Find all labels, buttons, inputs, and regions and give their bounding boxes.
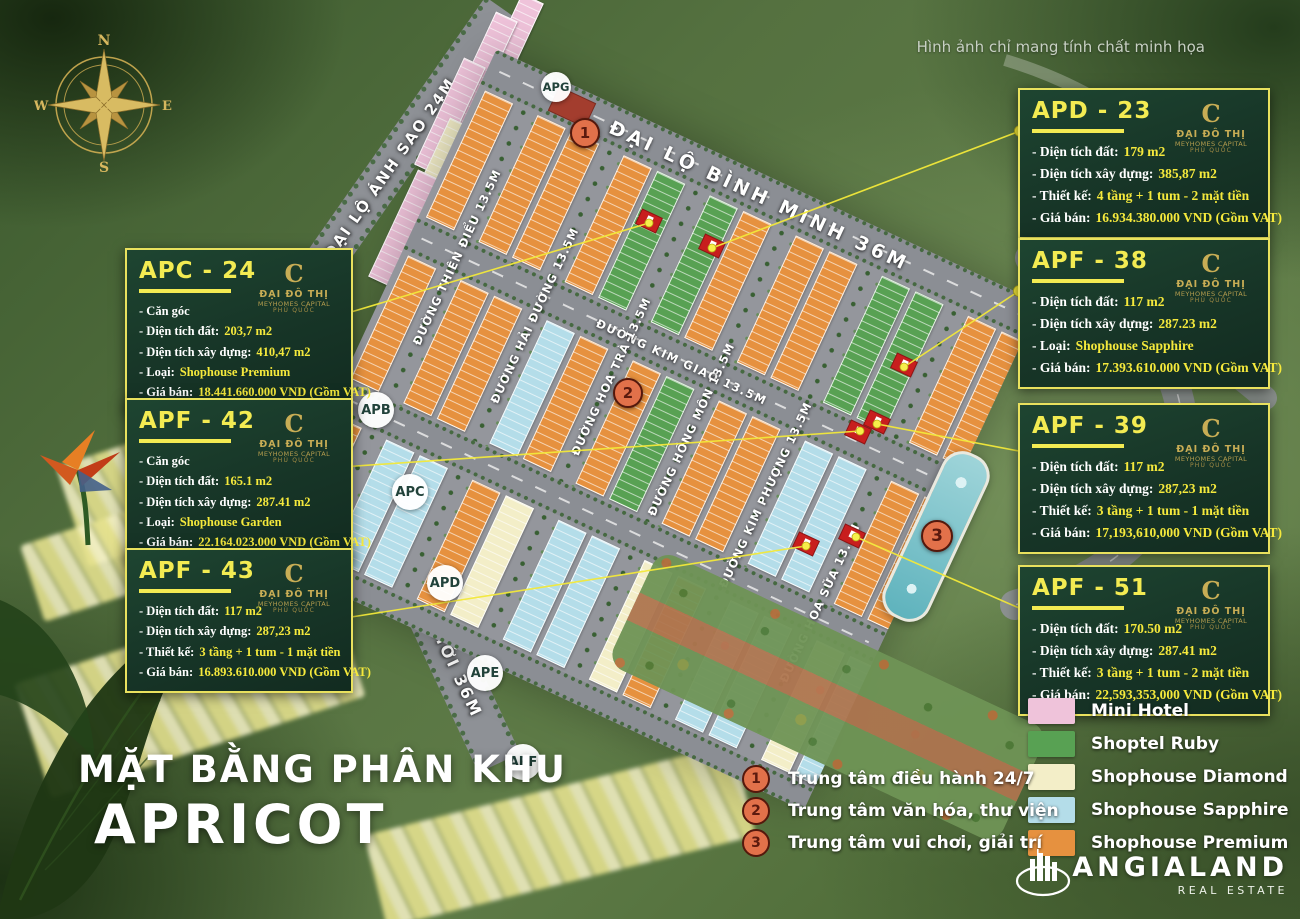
marker-legend-row: 1Trung tâm điều hành 24/7 [742,763,1059,795]
detail-value: 165.1 m2 [224,474,272,488]
site-plan-stage: ĐẠI LỘ ÁNH SAO 24M ĐẠI LỘ TRUNG TÂM AN T… [0,0,1300,919]
detail-value: 287.41 m2 [256,495,310,509]
card-detail-line: - Loại:Shophouse Premium [139,362,339,382]
card-title-underline [1032,129,1124,133]
info-card-apf-39: APF - 39CĐẠI ĐÔ THỊMEYHOMES CAPITALPHÚ Q… [1018,403,1270,554]
detail-label: - Giá bán: [139,385,193,399]
detail-label: - Diện tích xây dựng: [1032,481,1153,496]
zone-badge-apc: APC [392,474,428,510]
developer-logo-line1: ĐẠI ĐÔ THỊ [247,590,341,601]
developer-logo-line1: ĐẠI ĐÔ THỊ [1164,280,1258,291]
developer-logo: CĐẠI ĐÔ THỊMEYHOMES CAPITALPHÚ QUỐC [1164,415,1258,470]
detail-label: - Giá bán: [1032,525,1091,540]
detail-label: - Diện tích xây dựng: [139,624,251,638]
detail-value: 16.934.380.000 VND (Gồm VAT) [1096,210,1283,225]
detail-label: - Diện tích đất: [1032,621,1119,636]
title-line1: MẶT BẰNG PHÂN KHU [78,748,567,791]
legend-label: Mini Hotel [1091,701,1189,721]
marker-legend-badge: 1 [742,765,770,793]
detail-label: - Diện tích đất: [1032,294,1119,309]
detail-label: - Thiết kế: [139,645,194,659]
card-detail-line: - Giá bán:17.393.610.000 VND (Gồm VAT) [1032,357,1256,379]
card-detail-line: - Diện tích xây dựng:287,23 m2 [139,621,339,641]
detail-value: 16.893.610.000 VND (Gồm VAT) [198,665,371,679]
detail-value: 385,87 m2 [1158,166,1217,181]
detail-value: 287,23 m2 [1158,481,1217,496]
detail-value: 3 tầng + 1 tum - 1 mặt tiền [1097,503,1249,518]
developer-logo: CĐẠI ĐÔ THỊMEYHOMES CAPITALPHÚ QUỐC [247,560,341,615]
developer-monogram-icon: C [1164,250,1258,278]
developer-logo: CĐẠI ĐÔ THỊMEYHOMES CAPITALPHÚ QUỐC [1164,250,1258,305]
developer-logo: CĐẠI ĐÔ THỊMEYHOMES CAPITALPHÚ QUỐC [1164,100,1258,155]
page-title: MẶT BẰNG PHÂN KHU APRICOT [78,748,567,856]
detail-value: Shophouse Garden [180,515,282,529]
brand-text: ANGIALAND REAL ESTATE [1072,852,1288,897]
card-detail-line: - Giá bán:17,193,610,000 VND (Gồm VAT) [1032,522,1256,544]
card-detail-line: - Loại:Shophouse Garden [139,512,339,532]
developer-monogram-icon: C [247,560,341,588]
detail-label: - Giá bán: [139,665,193,679]
detail-label: - Giá bán: [139,535,193,549]
marker-legend-row: 3Trung tâm vui chơi, giải trí [742,827,1059,859]
card-detail-line: - Diện tích xây dựng:385,87 m2 [1032,163,1256,185]
disclaimer-text: Hình ảnh chỉ mang tính chất minh họa [917,38,1205,56]
developer-logo-line3: PHÚ QUỐC [1164,148,1258,155]
card-detail-line: - Giá bán:16.934.380.000 VND (Gồm VAT) [1032,207,1256,229]
detail-label: - Diện tích đất: [139,324,219,338]
compass-e: E [162,99,172,114]
card-title-underline [139,589,231,593]
detail-value: 117 m2 [1124,294,1165,309]
developer-logo-line3: PHÚ QUỐC [247,308,341,315]
card-detail-line: - Diện tích xây dựng:287,23 m2 [1032,478,1256,500]
developer-logo-line3: PHÚ QUỐC [247,608,341,615]
developer-logo-line1: ĐẠI ĐÔ THỊ [1164,607,1258,618]
legend-row: Mini Hotel [1028,694,1289,727]
marker-legend-badge: 3 [742,829,770,857]
info-card-apd-23: APD - 23CĐẠI ĐÔ THỊMEYHOMES CAPITALPHÚ Q… [1018,88,1270,239]
compass-rose: N E S W [34,33,174,173]
developer-logo: CĐẠI ĐÔ THỊMEYHOMES CAPITALPHÚ QUỐC [247,260,341,315]
map-marker-1: 1 [570,118,600,148]
detail-value: 410,47 m2 [256,345,310,359]
developer-logo-line1: ĐẠI ĐÔ THỊ [247,290,341,301]
zone-badge-apd: APD [427,565,463,601]
developer-logo-line3: PHÚ QUỐC [247,458,341,465]
detail-label: - Giá bán: [1032,210,1091,225]
developer-logo: CĐẠI ĐÔ THỊMEYHOMES CAPITALPHÚ QUỐC [1164,577,1258,632]
title-line2: APRICOT [78,793,567,856]
detail-label: - Diện tích xây dựng: [1032,316,1153,331]
legend-row: Shoptel Ruby [1028,727,1289,760]
card-detail-line: - Diện tích xây dựng:410,47 m2 [139,342,339,362]
detail-value: Shophouse Sapphire [1076,338,1194,353]
legend-label: Shophouse Sapphire [1091,800,1289,820]
info-card-apf-43: APF - 43CĐẠI ĐÔ THỊMEYHOMES CAPITALPHÚ Q… [125,548,353,693]
marker-legend-badge: 2 [742,797,770,825]
detail-label: - Diện tích xây dựng: [139,495,251,509]
brand-buildings-icon [1014,845,1072,903]
detail-value: 17,193,610,000 VND (Gồm VAT) [1096,525,1283,540]
color-legend: Mini HotelShoptel RubyShophouse DiamondS… [1028,694,1289,859]
developer-monogram-icon: C [1164,100,1258,128]
card-detail-line: - Thiết kế:3 tầng + 1 tum - 1 mặt tiền [1032,500,1256,522]
detail-label: - Thiết kế: [1032,188,1092,203]
card-title-underline [1032,606,1124,610]
detail-label: - Diện tích xây dựng: [1032,166,1153,181]
info-card-apc-24: APC - 24CĐẠI ĐÔ THỊMEYHOMES CAPITALPHÚ Q… [125,248,353,413]
detail-value: 287.41 m2 [1158,643,1217,658]
compass-s: S [99,160,109,173]
card-title-underline [139,289,231,293]
detail-label: - Loại: [139,515,175,529]
developer-logo-line3: PHÚ QUỐC [1164,463,1258,470]
card-detail-line: - Thiết kế:4 tầng + 1 tum - 2 mặt tiền [1032,185,1256,207]
brand-tagline: REAL ESTATE [1072,884,1288,897]
info-card-apf-42: APF - 42CĐẠI ĐÔ THỊMEYHOMES CAPITALPHÚ Q… [125,398,353,563]
detail-label: - Diện tích đất: [1032,144,1119,159]
zone-badge-apg: APG [541,72,571,102]
developer-logo-line1: ĐẠI ĐÔ THỊ [1164,130,1258,141]
marker-legend: 1Trung tâm điều hành 24/72Trung tâm văn … [742,763,1059,859]
developer-logo-line1: ĐẠI ĐÔ THỊ [247,440,341,451]
detail-value: 18.441.660.000 VND (Gồm VAT) [198,385,371,399]
detail-value: 287,23 m2 [256,624,310,638]
detail-value: 22.164.023.000 VND (Gồm VAT) [198,535,371,549]
compass-n: N [98,33,111,49]
detail-label: - Diện tích đất: [1032,459,1119,474]
detail-label: - Loại: [1032,338,1071,353]
marker-legend-row: 2Trung tâm văn hóa, thư viện [742,795,1059,827]
detail-label: - Diện tích đất: [139,474,219,488]
legend-label: Shoptel Ruby [1091,734,1219,754]
detail-value: 3 tầng + 1 tum - 2 mặt tiền [1097,665,1249,680]
detail-value: 3 tầng + 1 tum - 1 mặt tiền [199,645,340,659]
detail-label: - Giá bán: [1032,360,1091,375]
detail-label: - Diện tích đất: [139,604,219,618]
detail-value: 117 m2 [1124,459,1165,474]
marker-legend-label: Trung tâm văn hóa, thư viện [788,801,1059,821]
zone-badge-ape: APE [467,655,503,691]
developer-monogram-icon: C [247,260,341,288]
detail-label: - Thiết kế: [1032,665,1092,680]
brand-logo: ANGIALAND REAL ESTATE [1014,845,1288,903]
developer-monogram-icon: C [1164,577,1258,605]
card-title-underline [139,439,231,443]
legend-swatch-ruby [1028,731,1075,757]
developer-logo-line3: PHÚ QUỐC [1164,298,1258,305]
detail-value: 17.393.610.000 VND (Gồm VAT) [1096,360,1283,375]
detail-label: - Căn góc [139,304,190,318]
card-detail-line: - Diện tích đất:203,7 m2 [139,321,339,341]
map-marker-2: 2 [613,378,643,408]
card-detail-line: - Thiết kế:3 tầng + 1 tum - 2 mặt tiền [1032,662,1256,684]
marker-legend-label: Trung tâm vui chơi, giải trí [788,833,1042,853]
compass-w: W [34,99,49,114]
detail-value: 179 m2 [1124,144,1166,159]
map-marker-3: 3 [921,520,953,552]
card-title-underline [1032,444,1124,448]
card-title-underline [1032,279,1124,283]
card-detail-line: - Diện tích đất:165.1 m2 [139,471,339,491]
card-detail-line: - Diện tích xây dựng:287.41 m2 [1032,640,1256,662]
detail-value: 4 tầng + 1 tum - 2 mặt tiền [1097,188,1249,203]
developer-monogram-icon: C [1164,415,1258,443]
legend-swatch-mini [1028,698,1075,724]
developer-logo: CĐẠI ĐÔ THỊMEYHOMES CAPITALPHÚ QUỐC [247,410,341,465]
developer-monogram-icon: C [247,410,341,438]
detail-label: - Diện tích xây dựng: [139,345,251,359]
marker-legend-label: Trung tâm điều hành 24/7 [788,769,1035,789]
card-detail-line: - Diện tích xây dựng:287.23 m2 [1032,313,1256,335]
legend-row: Shophouse Diamond [1028,760,1289,793]
brand-name: ANGIALAND [1072,852,1288,883]
developer-logo-line1: ĐẠI ĐÔ THỊ [1164,445,1258,456]
info-card-apf-38: APF - 38CĐẠI ĐÔ THỊMEYHOMES CAPITALPHÚ Q… [1018,238,1270,389]
detail-label: - Diện tích xây dựng: [1032,643,1153,658]
card-detail-line: - Thiết kế:3 tầng + 1 tum - 1 mặt tiền [139,642,339,662]
legend-label: Shophouse Diamond [1091,767,1288,787]
card-detail-line: - Loại:Shophouse Sapphire [1032,335,1256,357]
detail-label: - Căn góc [139,454,190,468]
detail-value: 287.23 m2 [1158,316,1217,331]
developer-logo-line3: PHÚ QUỐC [1164,625,1258,632]
card-detail-line: - Diện tích xây dựng:287.41 m2 [139,492,339,512]
detail-label: - Thiết kế: [1032,503,1092,518]
detail-value: 203,7 m2 [224,324,272,338]
detail-label: - Loại: [139,365,175,379]
detail-value: Shophouse Premium [180,365,291,379]
card-detail-line: - Giá bán:16.893.610.000 VND (Gồm VAT) [139,662,339,682]
legend-row: Shophouse Sapphire [1028,793,1289,826]
